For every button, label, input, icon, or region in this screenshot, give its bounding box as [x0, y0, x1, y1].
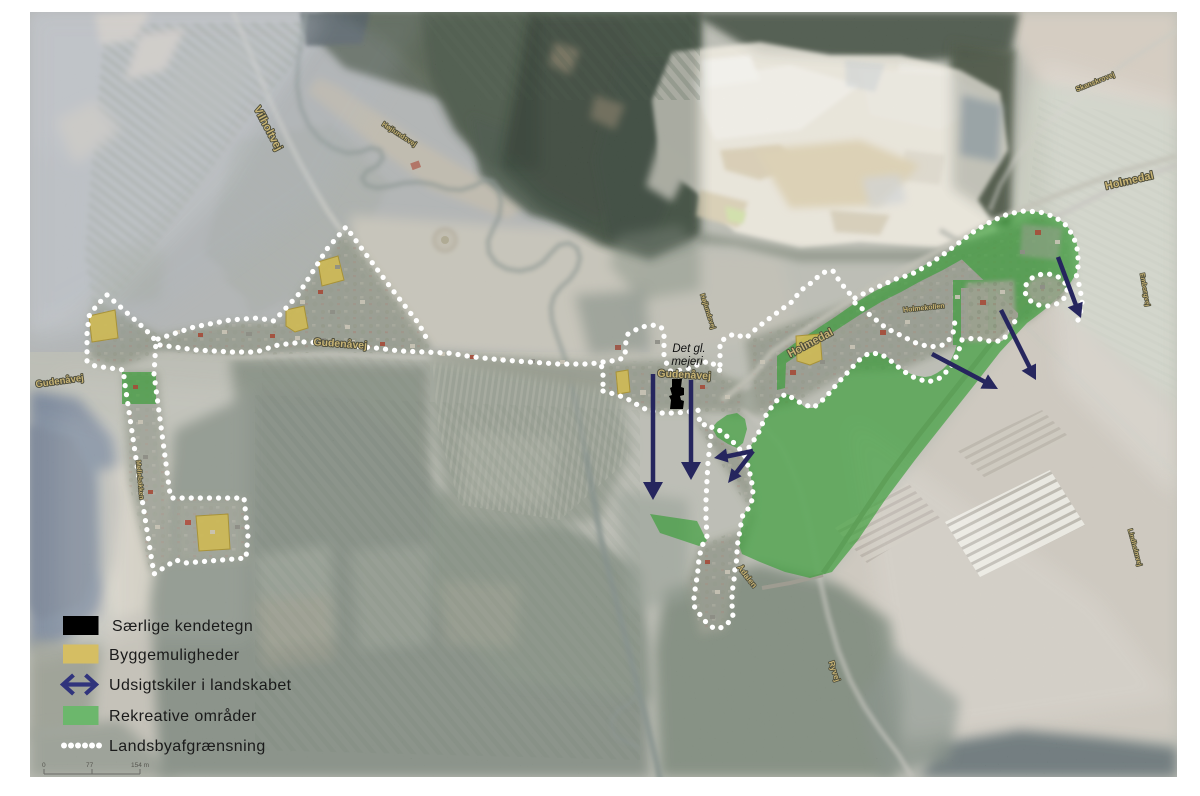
- svg-text:154 m: 154 m: [131, 762, 149, 769]
- svg-text:Landsbyafgrænsning: Landsbyafgrænsning: [109, 738, 266, 755]
- svg-text:77: 77: [86, 762, 94, 769]
- svg-text:Byggemuligheder: Byggemuligheder: [109, 647, 240, 664]
- svg-text:Det gl.: Det gl.: [672, 343, 705, 355]
- svg-text:0: 0: [42, 762, 46, 769]
- svg-text:Rekreative områder: Rekreative områder: [109, 707, 257, 725]
- svg-text:mejeri: mejeri: [671, 356, 703, 368]
- svg-text:Udsigtskiler i landskabet: Udsigtskiler i landskabet: [109, 677, 292, 694]
- svg-text:Særlige kendetegn: Særlige kendetegn: [112, 618, 253, 635]
